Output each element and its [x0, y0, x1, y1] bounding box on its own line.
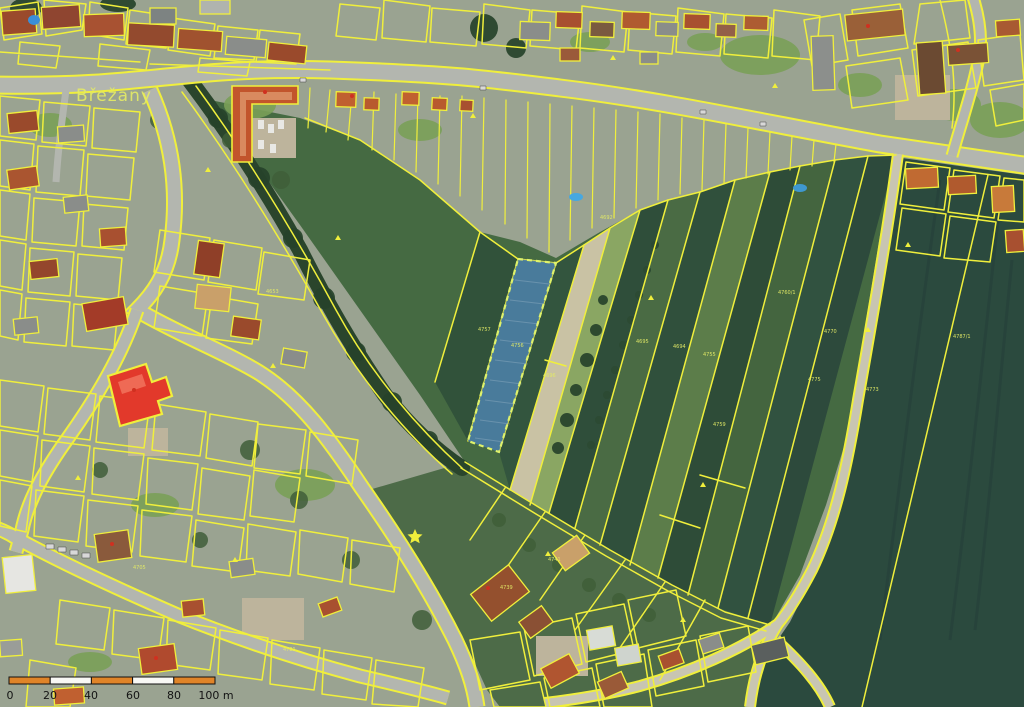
- building-roof: [225, 36, 266, 57]
- building-roof: [716, 24, 736, 38]
- building-roof: [7, 110, 39, 133]
- building-roof: [2, 555, 36, 594]
- building-roof: [995, 19, 1020, 37]
- parcel-number-label: 4739: [500, 585, 513, 591]
- building-roof: [336, 92, 357, 108]
- parcel-number-label: 4705: [133, 565, 146, 571]
- building-roof: [181, 599, 205, 617]
- parcel-number-label: 4694: [673, 344, 686, 350]
- building-roof: [684, 14, 711, 30]
- scale-tick-label: 0: [7, 689, 14, 702]
- parcel-number-label: 4695: [636, 339, 649, 345]
- building-roof: [560, 48, 580, 61]
- parcel-number-label: 4787/1: [953, 334, 971, 340]
- scale-bar-segment: [133, 677, 174, 684]
- building-roof: [656, 22, 678, 37]
- building-roof: [947, 43, 988, 66]
- building-roof: [41, 5, 80, 30]
- building-roof: [916, 41, 946, 95]
- building-roof: [29, 259, 59, 280]
- building-roof: [57, 125, 84, 143]
- building-roof: [99, 227, 126, 247]
- building-roof: [811, 36, 835, 91]
- building-roof: [640, 52, 658, 64]
- scale-tick-label: 40: [84, 689, 98, 702]
- building-roof: [615, 644, 642, 666]
- building-roof: [200, 0, 230, 14]
- building-roof: [556, 12, 583, 29]
- parcel-number-label: 4775: [808, 377, 821, 383]
- building-roof: [177, 28, 222, 51]
- scale-tick-label: 60: [126, 689, 140, 702]
- building-roof: [281, 348, 307, 368]
- scale-tick-label: 20: [43, 689, 57, 702]
- building-roof: [63, 195, 89, 213]
- parcel-number-label: 4759: [713, 422, 726, 428]
- swimming-pool: [793, 184, 807, 192]
- map-viewport[interactable]: 47574756469646924695469447554760/1477047…: [0, 0, 1024, 707]
- building-roof: [84, 13, 125, 36]
- building-roof: [622, 12, 651, 30]
- scale-tick-label: 100 m: [198, 689, 233, 702]
- building-roof: [127, 23, 174, 47]
- parcel-number-label: 4692: [600, 215, 613, 221]
- building-roof: [195, 284, 231, 311]
- swimming-pool: [28, 15, 40, 25]
- swimming-pool: [569, 193, 583, 201]
- aerial-map-canvas[interactable]: 47574756469646924695469447554760/1477047…: [0, 0, 1024, 707]
- building-roof: [991, 185, 1014, 212]
- building-roof: [586, 626, 615, 650]
- parcel-number-label: 4696: [543, 373, 556, 379]
- parcel-number-label: 4755: [703, 352, 716, 358]
- scale-tick-label: 80: [167, 689, 181, 702]
- building-roof: [432, 98, 448, 111]
- building-roof: [905, 167, 938, 189]
- place-name-label: Břežany: [76, 86, 152, 106]
- building-roof: [267, 42, 307, 64]
- building-roof: [948, 175, 977, 194]
- building-roof: [845, 9, 905, 41]
- parcel-number-label: 4756: [511, 343, 524, 349]
- building-roof: [1005, 229, 1024, 252]
- building-roof: [13, 317, 39, 335]
- building-roof: [138, 644, 177, 675]
- building-roof: [7, 166, 39, 190]
- parcel-number-label: 4721: [283, 647, 296, 653]
- building-roof: [744, 16, 768, 31]
- parcel-number-label: 4757: [478, 327, 491, 333]
- scale-bar-segment: [9, 677, 50, 684]
- scale-bar-segment: [174, 677, 215, 684]
- building-roof: [460, 100, 474, 112]
- parcel-number-label: 4760/1: [778, 290, 796, 296]
- building-roof: [194, 240, 224, 277]
- building-roof: [590, 22, 615, 38]
- building-roof: [94, 530, 132, 562]
- scale-bar-segment: [91, 677, 132, 684]
- building-roof: [0, 639, 23, 656]
- building-roof: [402, 92, 419, 106]
- parcel-number-label: 4773: [866, 387, 879, 393]
- parcel-number-label: 4770: [824, 329, 837, 335]
- building-roof: [520, 21, 551, 40]
- building-roof: [231, 316, 262, 340]
- parcel-number-label: 4741: [548, 557, 561, 563]
- building-roof: [364, 98, 379, 111]
- parcel-number-label: 4653: [266, 289, 279, 295]
- building-roof: [150, 8, 176, 24]
- building-roof: [53, 687, 84, 705]
- scale-bar-segment: [50, 677, 91, 684]
